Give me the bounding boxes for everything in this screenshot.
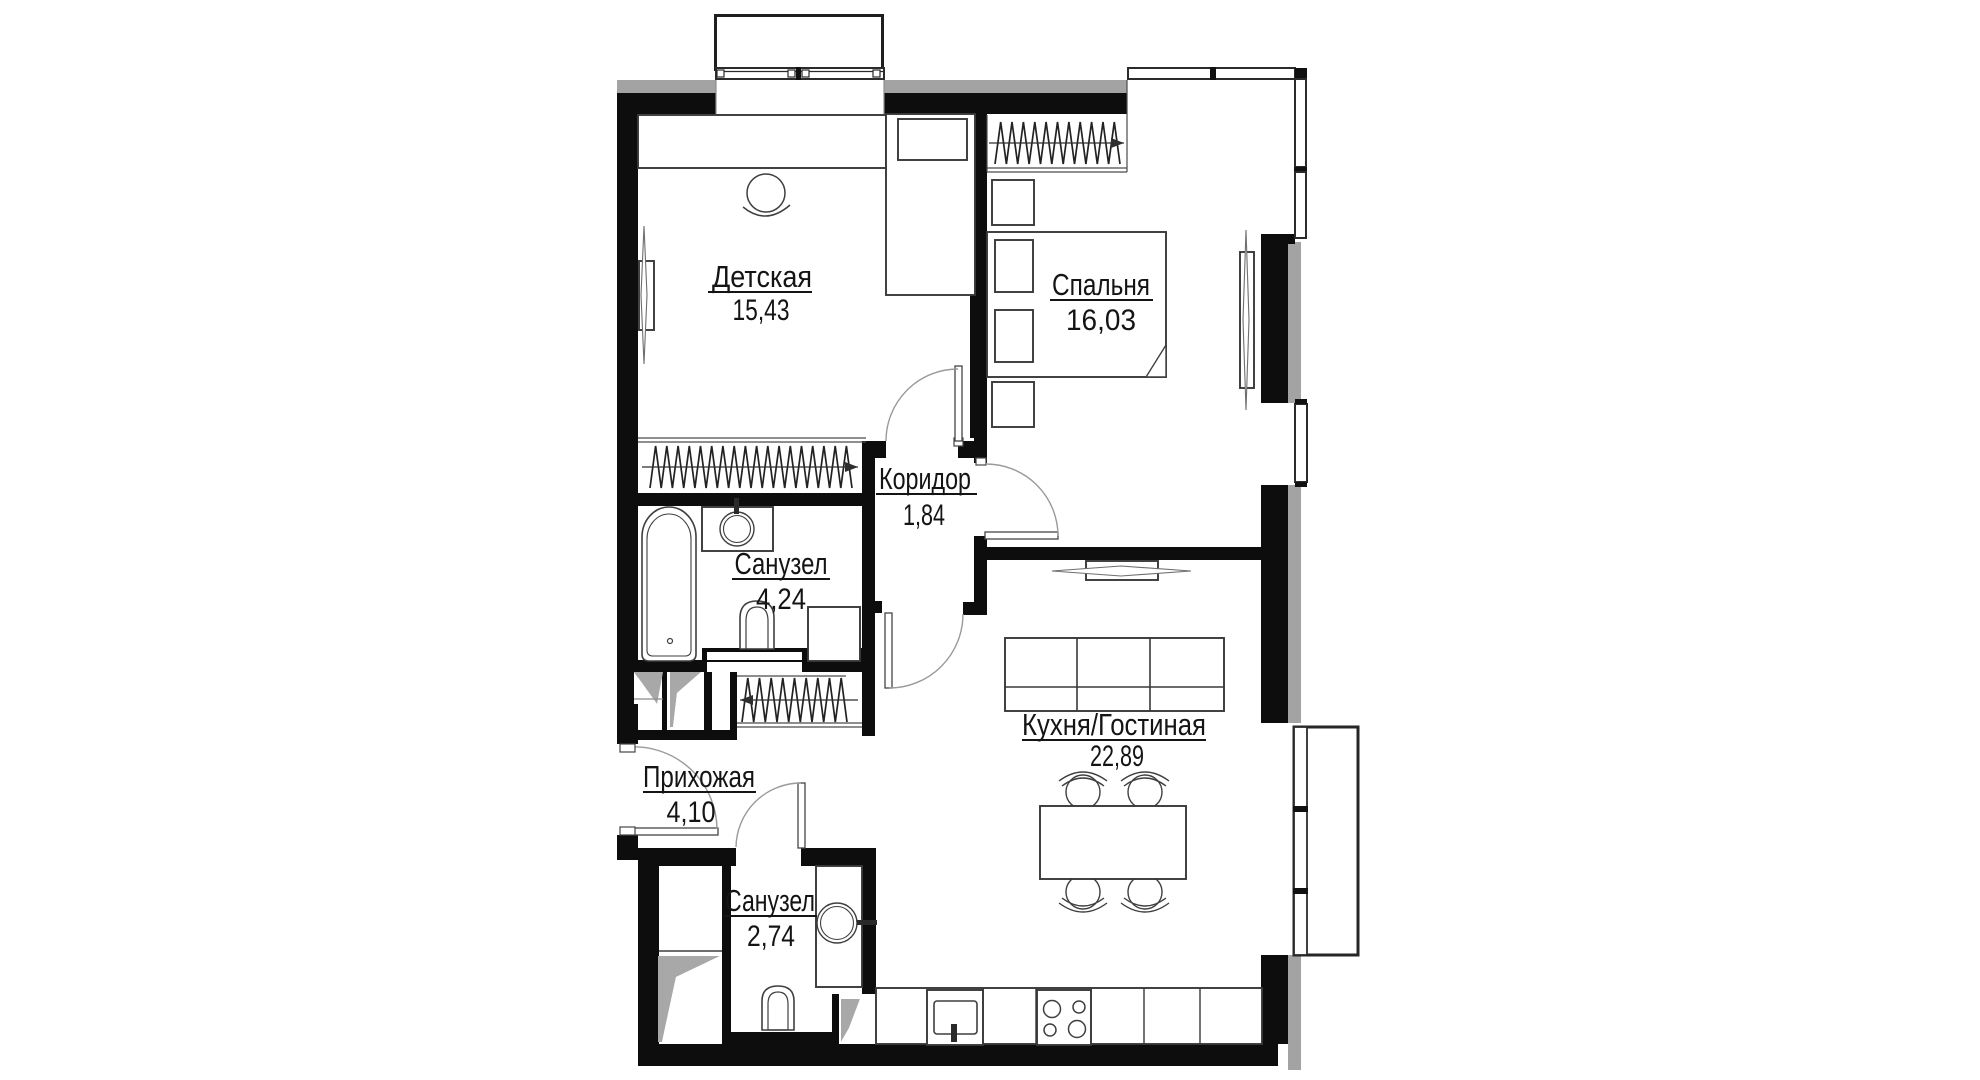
svg-text:4,24: 4,24 bbox=[756, 583, 806, 616]
svg-text:Спальня: Спальня bbox=[1052, 267, 1150, 302]
svg-text:22,89: 22,89 bbox=[1090, 740, 1144, 773]
svg-text:2,74: 2,74 bbox=[747, 920, 795, 953]
svg-text:Кухня/Гостиная: Кухня/Гостиная bbox=[1022, 707, 1206, 742]
svg-text:1,84: 1,84 bbox=[903, 499, 945, 532]
svg-text:15,43: 15,43 bbox=[733, 294, 790, 327]
svg-text:Санузел: Санузел bbox=[735, 546, 828, 581]
svg-text:Коридор: Коридор bbox=[879, 461, 971, 496]
svg-text:Детская: Детская bbox=[712, 259, 812, 294]
svg-text:Прихожая: Прихожая bbox=[643, 759, 755, 794]
svg-text:16,03: 16,03 bbox=[1066, 304, 1136, 337]
svg-text:Санузел: Санузел bbox=[725, 883, 815, 918]
svg-text:4,10: 4,10 bbox=[667, 796, 716, 829]
